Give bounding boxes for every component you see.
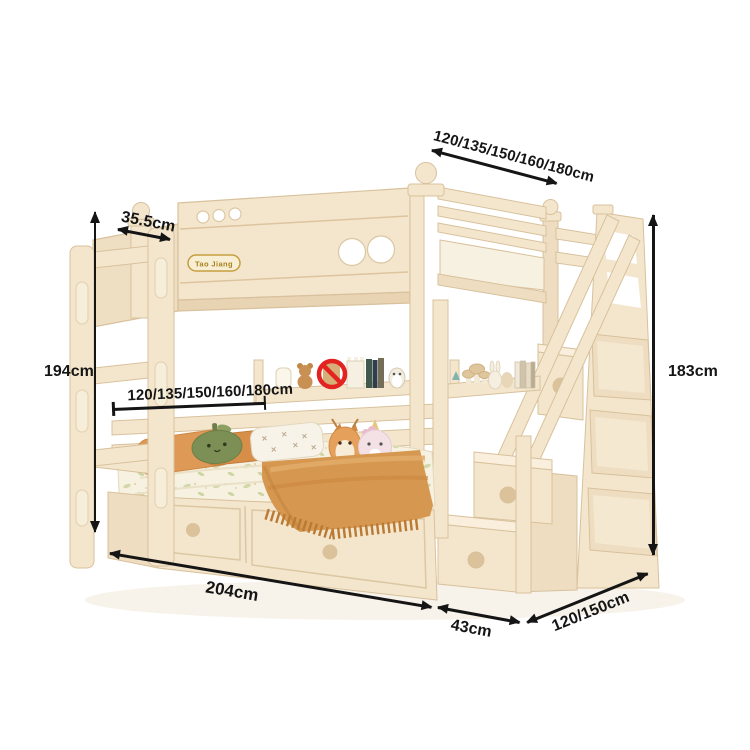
right-post-finial bbox=[416, 163, 437, 184]
stair-drawer-middle bbox=[474, 452, 552, 524]
stair-front-post bbox=[516, 436, 531, 593]
drawer-hole bbox=[468, 552, 484, 568]
product-dimension-diagram: Tao Jiang bbox=[0, 0, 750, 750]
brand-badge: Tao Jiang bbox=[188, 255, 240, 271]
drawer-hole bbox=[500, 487, 516, 503]
brand-badge-label: Tao Jiang bbox=[195, 260, 233, 269]
drawer-hole bbox=[186, 523, 200, 537]
wall-shelf bbox=[254, 355, 540, 404]
dim-right-height-line bbox=[652, 215, 655, 555]
bunk-bed-illustration: Tao Jiang bbox=[0, 0, 750, 750]
dim-left-height-line bbox=[94, 212, 97, 532]
dim-right-height-label: 183cm bbox=[668, 364, 718, 380]
stair-drawer-bottom bbox=[438, 514, 516, 592]
dim-left-height-label: 194cm bbox=[44, 364, 94, 380]
drawer-hole bbox=[323, 545, 338, 560]
pillow-white-floral bbox=[249, 421, 324, 462]
